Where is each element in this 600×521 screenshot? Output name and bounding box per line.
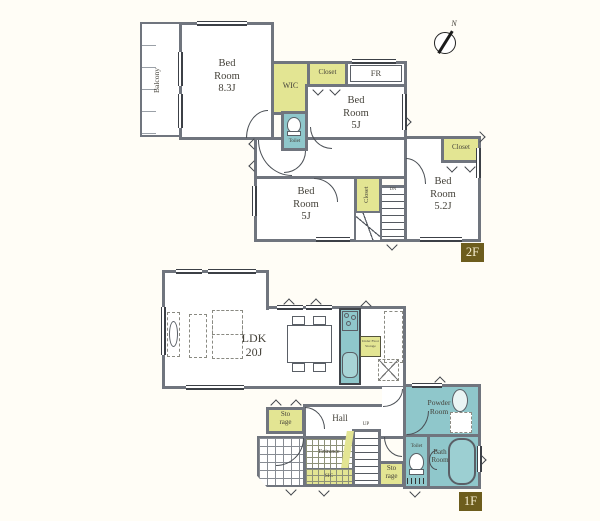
refrigerator-space — [378, 359, 399, 381]
kitchen-sink — [342, 352, 358, 378]
window-bedroom-sw-left — [252, 186, 257, 216]
room-label-entrance: Entrance — [303, 448, 355, 456]
window-ldk-left — [161, 307, 166, 355]
stairs-1f — [352, 429, 381, 487]
room-label-bath: Bath Room — [428, 448, 452, 465]
toilet-mat — [407, 478, 426, 484]
storage-west-line2: rage — [266, 418, 305, 426]
dining-table — [287, 325, 332, 363]
bedroom-se-name: Bed Room — [430, 176, 456, 200]
storage-mid-line2: rage — [378, 472, 405, 480]
stove-burner — [351, 315, 356, 320]
floor-badge-2f: 2F — [461, 243, 484, 262]
floor-plan-canvas: N Balcony Bed Room 8.3J WIC Closet FR Be… — [0, 0, 600, 521]
room-label-bedroom-8-3j: Bed Room 8.3J — [208, 58, 246, 96]
ldk-size: 20J — [234, 345, 274, 359]
window-balcony-door-2 — [178, 94, 183, 128]
storage-mid-line1: Sto — [387, 464, 396, 472]
cupboard-counter — [384, 311, 403, 363]
bedroom-main-size: 8.3J — [208, 83, 246, 96]
window-balcony-door-1 — [178, 52, 183, 86]
stairs-label-up: UP — [356, 422, 376, 428]
bathtub — [448, 438, 476, 485]
ldk-name: LDK — [242, 331, 267, 345]
room-label-powder: Powder Room — [414, 398, 464, 416]
stove-burner — [344, 313, 349, 318]
room-label-toilet-1f: Toilet — [403, 444, 430, 450]
room-label-wic: WIC — [271, 81, 310, 91]
room-label-closet-2f-top: Closet — [307, 68, 348, 76]
stove-burner — [346, 321, 351, 326]
toilet-tank-icon-2f — [287, 131, 301, 136]
under-floor-storage-label: Under Floor Storage — [360, 339, 381, 349]
room-label-fr: FR — [345, 68, 407, 78]
room-label-toilet-2f: Toilet — [281, 139, 308, 145]
powder-line1: Powder — [428, 398, 451, 407]
bedroom-main-name: Bed Room — [214, 58, 240, 82]
stairs-label-dn: DN — [380, 186, 406, 191]
dining-chair — [313, 363, 326, 372]
room-label-closet-2f-mid: Closet — [363, 180, 371, 210]
window-fr-top — [352, 59, 396, 64]
room-label-hall: Hall — [325, 413, 355, 424]
dining-chair — [292, 316, 305, 325]
bedroom-sw-size: 5J — [287, 211, 325, 224]
room-label-bedroom-5j-lower: Bed Room 5J — [287, 186, 325, 224]
bedroom-ne-name: Bed Room — [343, 95, 369, 119]
side-table — [189, 314, 207, 358]
bedroom-sw-name: Bed Room — [293, 186, 319, 210]
room-label-storage-west: Sto rage — [266, 410, 305, 427]
storage-west-line1: Sto — [281, 410, 290, 418]
tv-icon — [169, 321, 178, 347]
window-bedroom-se-right — [476, 148, 481, 178]
bedroom-ne-size: 5J — [337, 120, 375, 133]
room-label-closet-2f-se: Closet — [441, 143, 481, 151]
window-bedroom-main-top — [197, 21, 247, 26]
dining-chair — [313, 316, 326, 325]
bedroom-se-size: 5.2J — [424, 201, 462, 214]
floor-badge-1f: 1F — [459, 492, 482, 511]
room-label-ldk: LDK 20J — [234, 331, 274, 360]
room-label-bedroom-5j-upper: Bed Room 5J — [337, 95, 375, 133]
room-label-storage-mid: Sto rage — [378, 464, 405, 481]
stairs-2f — [379, 185, 407, 242]
window-ldk-bottom — [186, 385, 244, 390]
dining-chair — [292, 363, 305, 372]
room-label-bedroom-5-2j: Bed Room 5.2J — [424, 176, 462, 214]
window-bedroom-sw-bottom — [316, 237, 350, 242]
room-label-sic: SIC — [305, 473, 353, 480]
compass-north-label: N — [447, 19, 461, 29]
window-bedroom-se-bottom — [420, 237, 462, 242]
powder-line2: Room — [414, 407, 464, 416]
room-label-balcony: Balcony — [152, 55, 161, 107]
stairs-2f-winder — [354, 211, 382, 242]
window-ldk-top-1 — [176, 269, 202, 274]
bath-line2: Room — [428, 456, 452, 464]
door-arc-toilet-1f — [384, 437, 402, 457]
toilet-tank-icon-1f — [409, 469, 424, 475]
vent-mark — [318, 485, 329, 496]
bath-line1: Bath — [433, 448, 446, 456]
window-ldk-top-2 — [208, 269, 256, 274]
